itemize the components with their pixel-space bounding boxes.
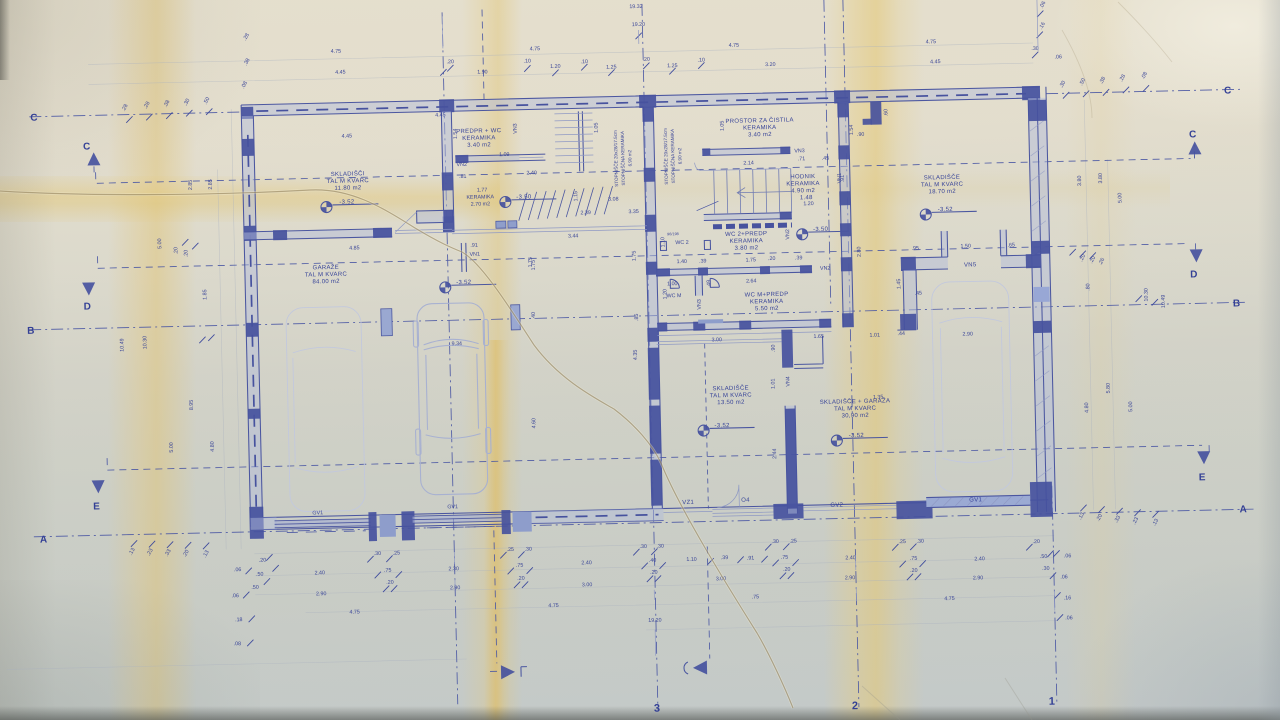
svg-text:1.75: 1.75 bbox=[632, 251, 638, 262]
svg-text:.30: .30 bbox=[1058, 80, 1067, 89]
svg-text:.40: .40 bbox=[531, 312, 537, 320]
svg-text:4.45: 4.45 bbox=[930, 59, 941, 65]
svg-text:.50: .50 bbox=[203, 96, 212, 105]
svg-text:1.85: 1.85 bbox=[202, 289, 208, 300]
svg-text:2.85: 2.85 bbox=[188, 180, 194, 191]
svg-text:.26: .26 bbox=[1097, 257, 1106, 266]
svg-text:10.49: 10.49 bbox=[1161, 295, 1167, 309]
svg-text:C: C bbox=[83, 141, 90, 152]
svg-text:19.20: 19.20 bbox=[632, 22, 646, 28]
svg-text:TAL M KVARC: TAL M KVARC bbox=[834, 406, 877, 413]
svg-text:1.15: 1.15 bbox=[573, 191, 579, 202]
svg-text:.06: .06 bbox=[234, 567, 242, 573]
svg-text:.10: .10 bbox=[523, 58, 531, 64]
svg-text:1.75: 1.75 bbox=[746, 257, 757, 263]
svg-text:2.30: 2.30 bbox=[448, 566, 459, 572]
svg-text:TAL M KVARC: TAL M KVARC bbox=[921, 182, 964, 189]
svg-text:1.50: 1.50 bbox=[960, 243, 971, 249]
svg-text:.06: .06 bbox=[1064, 553, 1072, 559]
svg-text:.95: .95 bbox=[911, 246, 919, 252]
svg-text:1.90: 1.90 bbox=[477, 69, 488, 75]
svg-text:.81: .81 bbox=[459, 174, 467, 180]
svg-text:10.30: 10.30 bbox=[142, 336, 148, 350]
svg-text:2.40: 2.40 bbox=[974, 556, 985, 562]
svg-text:.20: .20 bbox=[1032, 539, 1040, 545]
svg-text:2.90: 2.90 bbox=[962, 331, 973, 337]
svg-text:VN2: VN2 bbox=[820, 266, 831, 272]
svg-text:10.49: 10.49 bbox=[119, 338, 125, 352]
svg-text:.90: .90 bbox=[771, 344, 777, 352]
svg-text:4.75: 4.75 bbox=[729, 43, 740, 49]
svg-text:-3.52: -3.52 bbox=[339, 199, 355, 205]
svg-text:TAL M KVARC: TAL M KVARC bbox=[710, 392, 753, 399]
svg-text:HODNIK: HODNIK bbox=[790, 174, 815, 181]
svg-text:.20: .20 bbox=[517, 576, 525, 582]
svg-text:4.75: 4.75 bbox=[530, 46, 541, 52]
svg-text:B: B bbox=[27, 326, 34, 337]
svg-text:VN1: VN1 bbox=[470, 252, 481, 258]
svg-text:2.40: 2.40 bbox=[845, 555, 856, 561]
svg-text:.45: .45 bbox=[914, 291, 922, 297]
svg-text:1: 1 bbox=[1049, 696, 1055, 708]
svg-text:.23: .23 bbox=[146, 548, 155, 557]
svg-text:96/198: 96/198 bbox=[667, 232, 679, 236]
svg-text:4.75: 4.75 bbox=[331, 49, 342, 55]
svg-text:4.45: 4.45 bbox=[335, 70, 346, 76]
svg-text:3.35: 3.35 bbox=[628, 209, 639, 215]
svg-text:.16: .16 bbox=[1064, 595, 1072, 601]
svg-text:2.90: 2.90 bbox=[845, 575, 856, 581]
svg-text:3.08: 3.08 bbox=[608, 196, 619, 202]
svg-text:.80: .80 bbox=[1085, 283, 1091, 291]
svg-text:-3.52: -3.52 bbox=[849, 433, 865, 439]
svg-text:KERAMIKA: KERAMIKA bbox=[462, 135, 496, 142]
svg-text:.75: .75 bbox=[752, 594, 760, 600]
svg-text:KERAMIKA: KERAMIKA bbox=[466, 194, 494, 201]
svg-text:2.44: 2.44 bbox=[772, 448, 778, 459]
svg-text:5.00: 5.00 bbox=[1117, 193, 1123, 204]
svg-text:.25: .25 bbox=[393, 550, 401, 556]
svg-text:-3.52: -3.52 bbox=[714, 423, 730, 429]
svg-text:.30: .30 bbox=[916, 539, 924, 545]
svg-text:4.35: 4.35 bbox=[633, 350, 639, 361]
svg-text:1.25: 1.25 bbox=[606, 64, 617, 70]
svg-text:84.00 m2: 84.00 m2 bbox=[312, 279, 340, 286]
svg-text:1.20: 1.20 bbox=[662, 289, 668, 300]
svg-text:.50: .50 bbox=[251, 585, 259, 591]
svg-text:.20: .20 bbox=[1088, 255, 1097, 264]
svg-text:KERAMIKA: KERAMIKA bbox=[786, 181, 820, 188]
svg-text:.06: .06 bbox=[231, 593, 239, 599]
svg-text:1.00: 1.00 bbox=[667, 281, 678, 287]
svg-text:STOPNIŠČE 20x28/17.5cm: STOPNIŠČE 20x28/17.5cm bbox=[612, 130, 619, 187]
svg-text:1.01: 1.01 bbox=[770, 378, 776, 389]
svg-text:WC 2+PREDP: WC 2+PREDP bbox=[725, 231, 767, 238]
svg-text:8.95: 8.95 bbox=[189, 400, 195, 411]
svg-text:VN3: VN3 bbox=[697, 299, 703, 310]
svg-text:KERAMIKA: KERAMIKA bbox=[743, 125, 777, 132]
svg-text:STOPNIŠČE 20x28/17.5cm: STOPNIŠČE 20x28/17.5cm bbox=[662, 128, 669, 185]
svg-text:KERAMIKA: KERAMIKA bbox=[750, 299, 784, 306]
svg-text:.28: .28 bbox=[121, 103, 130, 112]
svg-text:.20: .20 bbox=[910, 568, 918, 574]
svg-text:.30: .30 bbox=[771, 539, 779, 545]
svg-text:.20: .20 bbox=[386, 580, 394, 586]
svg-text:.50: .50 bbox=[256, 572, 264, 578]
svg-text:1.05: 1.05 bbox=[720, 121, 726, 132]
svg-text:TAL M KVARC: TAL M KVARC bbox=[305, 272, 348, 279]
svg-text:SKLADIŠČE + GARAŽA: SKLADIŠČE + GARAŽA bbox=[820, 396, 891, 406]
svg-text:4.85: 4.85 bbox=[349, 245, 360, 251]
svg-text:.39: .39 bbox=[795, 255, 803, 261]
svg-text:VN3: VN3 bbox=[794, 148, 805, 154]
svg-text:4.75: 4.75 bbox=[926, 39, 937, 45]
svg-text:4.75: 4.75 bbox=[349, 609, 360, 615]
svg-text:4.75: 4.75 bbox=[944, 596, 955, 602]
svg-text:.40: .40 bbox=[649, 558, 657, 564]
svg-text:C: C bbox=[1189, 129, 1196, 140]
svg-text:.39: .39 bbox=[721, 555, 729, 561]
svg-text:.75: .75 bbox=[516, 563, 524, 569]
svg-text:.75: .75 bbox=[384, 568, 392, 574]
svg-text:.75: .75 bbox=[781, 555, 789, 561]
svg-text:.38: .38 bbox=[243, 57, 252, 66]
svg-text:.38: .38 bbox=[1098, 76, 1107, 85]
svg-text:19.32: 19.32 bbox=[629, 4, 643, 10]
svg-text:5.00: 5.00 bbox=[1128, 401, 1134, 412]
svg-text:KERAMIKA: KERAMIKA bbox=[730, 238, 764, 245]
svg-text:.44: .44 bbox=[897, 331, 905, 337]
svg-text:3.40 m2: 3.40 m2 bbox=[748, 132, 772, 139]
svg-text:VN3: VN3 bbox=[513, 123, 519, 134]
svg-text:B: B bbox=[1233, 298, 1240, 309]
svg-text:.20: .20 bbox=[650, 570, 658, 576]
svg-text:.71: .71 bbox=[798, 156, 806, 162]
svg-text:GV1: GV1 bbox=[312, 510, 323, 516]
svg-text:.20: .20 bbox=[768, 256, 776, 262]
svg-text:1.10: 1.10 bbox=[660, 237, 666, 248]
svg-text:.13: .13 bbox=[1151, 518, 1160, 527]
svg-text:1.54: 1.54 bbox=[849, 125, 855, 136]
svg-text:2.80: 2.80 bbox=[856, 246, 862, 257]
svg-text:.20: .20 bbox=[173, 247, 179, 255]
svg-text:1.25: 1.25 bbox=[667, 63, 678, 69]
svg-text:3.40 m2: 3.40 m2 bbox=[467, 142, 491, 149]
svg-text:.60: .60 bbox=[883, 109, 889, 117]
svg-text:1.40: 1.40 bbox=[677, 259, 688, 265]
svg-text:.30: .30 bbox=[639, 544, 647, 550]
svg-text:.06: .06 bbox=[1060, 574, 1068, 580]
svg-text:1.01: 1.01 bbox=[869, 333, 880, 339]
svg-text:1.09: 1.09 bbox=[499, 152, 510, 158]
svg-text:-3.52: -3.52 bbox=[456, 280, 472, 286]
svg-text:.20: .20 bbox=[642, 57, 650, 63]
svg-text:4.60: 4.60 bbox=[531, 418, 537, 429]
svg-text:4.80: 4.80 bbox=[210, 441, 216, 452]
svg-text:STOPNIŠČNA KERAMIKA: STOPNIŠČNA KERAMIKA bbox=[619, 130, 626, 186]
svg-text:5.00: 5.00 bbox=[157, 238, 163, 249]
svg-text:3.44: 3.44 bbox=[568, 233, 579, 239]
svg-text:-3.50: -3.50 bbox=[813, 227, 829, 233]
svg-text:.20: .20 bbox=[183, 250, 189, 258]
svg-text:D: D bbox=[84, 301, 91, 312]
svg-text:.20: .20 bbox=[446, 59, 454, 65]
svg-text:SKLADIŠČI: SKLADIŠČI bbox=[331, 170, 365, 178]
svg-text:1.45: 1.45 bbox=[896, 279, 902, 290]
svg-text:2.40: 2.40 bbox=[581, 560, 592, 566]
svg-text:9.34: 9.34 bbox=[452, 341, 463, 347]
svg-text:2: 2 bbox=[852, 700, 858, 712]
svg-text:.08: .08 bbox=[234, 641, 242, 647]
svg-text:.30: .30 bbox=[374, 551, 382, 557]
svg-text:VN5: VN5 bbox=[964, 262, 977, 268]
svg-text:5.50 m2: 5.50 m2 bbox=[755, 306, 779, 313]
svg-text:.20: .20 bbox=[783, 567, 791, 573]
svg-text:2.40: 2.40 bbox=[314, 570, 325, 576]
svg-text:PREDPR + WC: PREDPR + WC bbox=[456, 128, 502, 135]
svg-text:-3.50: -3.50 bbox=[516, 194, 532, 200]
svg-text:D: D bbox=[1190, 269, 1197, 280]
svg-text:.91: .91 bbox=[840, 175, 846, 183]
svg-text:GV1: GV1 bbox=[969, 497, 982, 503]
svg-text:VN2: VN2 bbox=[456, 162, 467, 168]
svg-text:3.80 m2: 3.80 m2 bbox=[735, 245, 759, 252]
svg-text:.30: .30 bbox=[183, 98, 192, 107]
svg-text:.06: .06 bbox=[1065, 615, 1073, 621]
svg-text:.08: .08 bbox=[1140, 71, 1149, 80]
svg-text:VZ1: VZ1 bbox=[682, 500, 694, 506]
svg-text:.08: .08 bbox=[240, 80, 249, 89]
svg-text:.20: .20 bbox=[1078, 253, 1087, 262]
svg-text:STOPNIŠČNA KERAMIKA: STOPNIŠČNA KERAMIKA bbox=[669, 128, 676, 184]
svg-text:GV2: GV2 bbox=[830, 502, 843, 508]
svg-text:4.75: 4.75 bbox=[548, 603, 559, 609]
svg-text:1.75: 1.75 bbox=[531, 260, 537, 271]
svg-text:3.20: 3.20 bbox=[765, 62, 776, 68]
svg-text:TAL M KVARC: TAL M KVARC bbox=[327, 178, 370, 185]
svg-text:.25: .25 bbox=[789, 538, 797, 544]
svg-text:O4: O4 bbox=[741, 498, 750, 504]
svg-text:1.20: 1.20 bbox=[803, 201, 814, 207]
svg-text:PROSTOR ZA ČISTILA: PROSTOR ZA ČISTILA bbox=[725, 116, 793, 125]
svg-text:.75: .75 bbox=[910, 556, 918, 562]
svg-text:.25: .25 bbox=[506, 547, 514, 553]
svg-text:.23: .23 bbox=[1131, 516, 1140, 525]
svg-text:2.64: 2.64 bbox=[746, 278, 757, 284]
svg-text:30,90 m2: 30,90 m2 bbox=[842, 413, 870, 420]
svg-text:18.70 m2: 18.70 m2 bbox=[928, 189, 956, 196]
svg-text:GV1: GV1 bbox=[447, 504, 458, 510]
svg-text:.90: .90 bbox=[857, 132, 865, 138]
svg-text:3.80: 3.80 bbox=[1077, 175, 1083, 186]
svg-text:.13: .13 bbox=[202, 549, 211, 558]
svg-text:.20: .20 bbox=[1095, 513, 1104, 522]
svg-text:2.40: 2.40 bbox=[526, 170, 537, 176]
svg-text:A: A bbox=[40, 534, 47, 545]
svg-text:SKLADIŠČE: SKLADIŠČE bbox=[924, 174, 961, 182]
svg-text:.38: .38 bbox=[163, 99, 172, 108]
svg-text:3.00: 3.00 bbox=[582, 582, 593, 588]
svg-text:.45: .45 bbox=[822, 156, 830, 162]
svg-text:19.20: 19.20 bbox=[648, 618, 662, 624]
svg-text:.20: .20 bbox=[182, 549, 191, 558]
svg-text:2.90: 2.90 bbox=[316, 591, 327, 597]
svg-text:.85: .85 bbox=[634, 314, 640, 322]
svg-text:.06: .06 bbox=[1039, 0, 1048, 9]
svg-text:2.85: 2.85 bbox=[208, 179, 214, 190]
svg-text:10.30: 10.30 bbox=[1143, 288, 1149, 302]
svg-text:WC M+PREDP: WC M+PREDP bbox=[745, 292, 789, 299]
svg-text:.50: .50 bbox=[1040, 554, 1048, 560]
svg-text:.16: .16 bbox=[1038, 21, 1047, 30]
svg-text:.18: .18 bbox=[235, 617, 243, 623]
svg-text:.25: .25 bbox=[898, 539, 906, 545]
svg-text:3: 3 bbox=[654, 703, 660, 715]
svg-text:5.00: 5.00 bbox=[169, 442, 175, 453]
svg-text:WC 2: WC 2 bbox=[675, 240, 689, 246]
svg-text:6.90 m2: 6.90 m2 bbox=[677, 147, 682, 164]
svg-text:4.80: 4.80 bbox=[1084, 402, 1090, 413]
svg-text:1.20: 1.20 bbox=[550, 64, 561, 70]
svg-text:.30: .30 bbox=[1042, 566, 1050, 572]
svg-text:.20: .20 bbox=[259, 558, 267, 564]
svg-text:6.90 m2: 6.90 m2 bbox=[627, 149, 632, 166]
svg-text:1.10: 1.10 bbox=[686, 557, 697, 563]
svg-text:C: C bbox=[30, 113, 37, 124]
svg-text:E: E bbox=[93, 501, 100, 512]
svg-text:1.65: 1.65 bbox=[813, 334, 824, 340]
svg-text:5.80: 5.80 bbox=[1106, 383, 1112, 394]
svg-text:1.05: 1.05 bbox=[594, 122, 600, 133]
svg-text:4.90 m2: 4.90 m2 bbox=[791, 188, 815, 195]
svg-text:C: C bbox=[1224, 86, 1231, 97]
svg-text:2.14: 2.14 bbox=[743, 160, 754, 166]
svg-text:4.45: 4.45 bbox=[435, 112, 446, 118]
svg-text:.33: .33 bbox=[164, 548, 173, 557]
svg-text:WC M: WC M bbox=[666, 293, 682, 299]
svg-text:.39: .39 bbox=[699, 258, 707, 264]
svg-text:.91: .91 bbox=[747, 555, 755, 561]
svg-text:.49: .49 bbox=[706, 280, 712, 288]
svg-text:VN2: VN2 bbox=[785, 229, 791, 240]
svg-text:2.39: 2.39 bbox=[580, 210, 591, 216]
svg-text:1.77: 1.77 bbox=[477, 187, 488, 193]
svg-text:A: A bbox=[1239, 504, 1246, 515]
svg-text:13.50 m2: 13.50 m2 bbox=[717, 400, 745, 407]
svg-text:.28: .28 bbox=[143, 101, 152, 110]
svg-text:3.00: 3.00 bbox=[712, 337, 723, 343]
svg-text:1.54: 1.54 bbox=[453, 129, 459, 140]
svg-text:.30: .30 bbox=[524, 546, 532, 552]
svg-text:2.90: 2.90 bbox=[973, 575, 984, 581]
svg-text:.28: .28 bbox=[1118, 74, 1127, 83]
svg-text:VN4: VN4 bbox=[785, 376, 791, 387]
svg-text:3.80: 3.80 bbox=[1098, 173, 1104, 184]
svg-text:.33: .33 bbox=[1113, 515, 1122, 524]
svg-text:.13: .13 bbox=[128, 547, 137, 556]
svg-text:4.45: 4.45 bbox=[342, 133, 353, 139]
svg-text:SKLADIŠČE: SKLADIŠČE bbox=[712, 385, 749, 393]
svg-text:-3.52: -3.52 bbox=[938, 207, 954, 213]
svg-text:2.70 m2: 2.70 m2 bbox=[471, 201, 490, 207]
svg-text:.28: .28 bbox=[242, 32, 251, 41]
svg-text:.65: .65 bbox=[1007, 242, 1015, 248]
svg-text:.06: .06 bbox=[1054, 54, 1062, 60]
svg-text:E: E bbox=[1199, 472, 1206, 483]
svg-text:GARAŽE: GARAŽE bbox=[312, 263, 339, 272]
svg-text:.91: .91 bbox=[470, 243, 478, 249]
